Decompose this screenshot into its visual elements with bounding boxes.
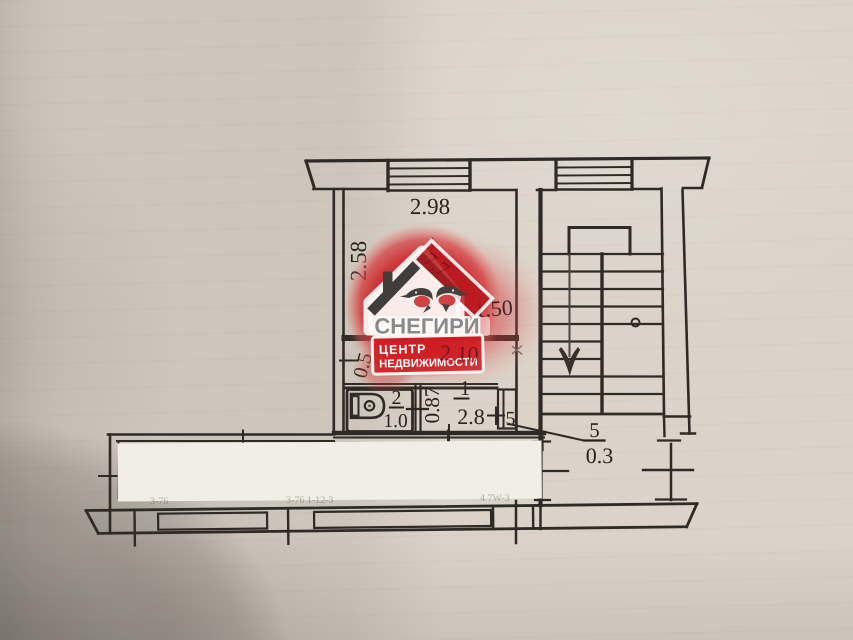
svg-text:1.0: 1.0 <box>383 411 407 432</box>
svg-text:5: 5 <box>506 408 516 430</box>
svg-text:ЦЕНТР: ЦЕНТР <box>379 342 427 357</box>
svg-text:3-76: 3-76 <box>150 496 168 507</box>
svg-text:4 7W-3: 4 7W-3 <box>480 493 510 504</box>
svg-text:3-76 1-12-3: 3-76 1-12-3 <box>286 495 334 506</box>
svg-text:0.3: 0.3 <box>586 443 614 468</box>
svg-text:2.8: 2.8 <box>457 404 485 429</box>
svg-text:0.87: 0.87 <box>420 387 444 424</box>
svg-text:2.10: 2.10 <box>440 340 480 367</box>
svg-text:5: 5 <box>589 418 600 442</box>
svg-text:2.98: 2.98 <box>410 194 450 219</box>
